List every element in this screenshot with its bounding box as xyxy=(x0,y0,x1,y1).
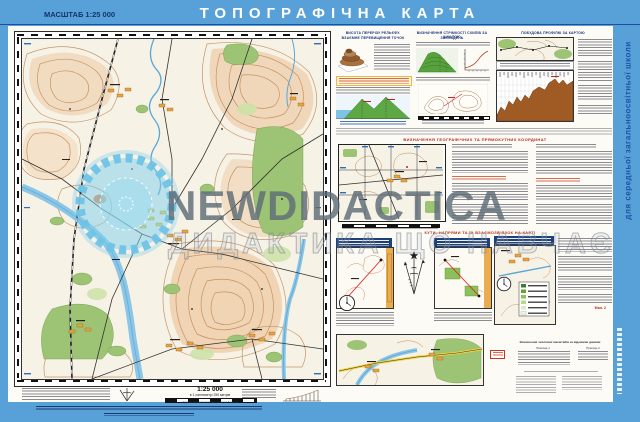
panel3-text-col-2 xyxy=(578,61,612,81)
coords-col1-par1 xyxy=(452,151,528,173)
page-title: ТОПОГРАФІЧНА КАРТА xyxy=(150,5,530,22)
scale-formula-chip xyxy=(490,350,505,359)
layer-pyramid-icon xyxy=(336,42,370,72)
angles-panel2-header xyxy=(434,238,490,247)
panel1-caption xyxy=(340,121,406,125)
panel1-side-notes xyxy=(374,44,410,70)
coords-map-excerpt xyxy=(338,144,446,222)
panel3-text-col-1 xyxy=(578,39,612,57)
figure-label: Мал. 2 xyxy=(576,306,606,310)
gear-watermark-icon xyxy=(70,148,182,260)
angles-panel2-text xyxy=(434,312,492,323)
coords-col2-par2 xyxy=(536,185,612,201)
compass-icon xyxy=(338,294,356,312)
coords-col1-par2 xyxy=(452,183,528,201)
declination-diagram-icon xyxy=(112,387,142,402)
coords-col1-lead xyxy=(452,144,512,149)
coords-col1-highlight xyxy=(452,176,506,180)
panel3-title: ПОБУДОВА ПРОФІЛЮ ЗА КАРТОЮ xyxy=(494,31,612,35)
panel1-title-line2: ВЗАЄМНЕ ПЕРЕВИЩЕННЯ ТОЧОК xyxy=(334,36,412,40)
map-graticule-right xyxy=(325,37,328,378)
map-graticule-top xyxy=(17,34,326,37)
map-notes-right xyxy=(242,389,276,400)
angles-right-par3 xyxy=(558,276,612,290)
coords-map-scale-numbers xyxy=(342,228,438,230)
header-rule xyxy=(0,24,640,26)
angles-panel2-map xyxy=(434,247,492,309)
panel1-paragraph xyxy=(336,87,410,94)
example1-label: Приклад 1 xyxy=(528,346,558,350)
credits-col2 xyxy=(562,376,602,390)
coords-col2-highlight xyxy=(536,178,580,182)
route-strip-map xyxy=(336,334,484,386)
angles-section-title: КУТИ, НАПРЯМИ ТА ЇХ ВЗАЄМОЗВ'ЯЗОК НА КАР… xyxy=(380,231,580,235)
mountain-heights-icon xyxy=(336,95,410,119)
compass2-icon xyxy=(496,276,512,292)
angles-right-par4 xyxy=(558,294,612,304)
terrain-profile-chart xyxy=(496,70,574,122)
panel2-paragraph2 xyxy=(416,77,490,82)
panel3-text-col-3 xyxy=(578,85,612,101)
credits-divider-line xyxy=(524,371,598,373)
footer-imprint-line2 xyxy=(104,413,194,416)
angles-right-par1 xyxy=(558,238,612,252)
coords-col2-par3 xyxy=(536,204,612,224)
panel3-caption-box xyxy=(496,61,574,70)
footer-imprint-line1 xyxy=(36,406,262,411)
panel2-caption xyxy=(422,120,484,124)
coords-col2-lead xyxy=(536,144,596,149)
declination-star-icon xyxy=(398,250,430,296)
panel2-paragraph1 xyxy=(416,42,490,47)
poster-root: МАСШТАБ 1:25 000 ТОПОГРАФІЧНА КАРТА для … xyxy=(0,0,640,422)
profile-route-map-icon xyxy=(496,37,574,61)
credits-col1 xyxy=(516,376,556,394)
coords-section-title: ВИЗНАЧЕННЯ ГЕОГРАФІЧНИХ ТА ПРЯМОКУТНИХ К… xyxy=(360,137,590,142)
angles-panel1-header xyxy=(336,238,392,247)
example1-list xyxy=(518,351,570,365)
map-notes-left xyxy=(22,388,110,401)
map-contour-note: Суцільні горизонталі проведені через 5 м… xyxy=(150,401,270,404)
side-strip-micro-text xyxy=(617,328,622,394)
side-strip-vertical-text: для середньої загальноосвітньої школи xyxy=(624,30,637,232)
panel1-highlight-note xyxy=(336,76,412,86)
panel2-title-line2: ЗАКЛАДЕНЬ xyxy=(414,36,490,40)
contour-sketch-icon xyxy=(418,84,488,114)
panel3-text-col-4 xyxy=(578,105,612,115)
angles-right-par2 xyxy=(558,256,612,272)
example2-label: Приклад 2 xyxy=(578,346,608,350)
angles-panel3-header xyxy=(494,236,554,245)
green-slope-icon xyxy=(416,48,458,74)
angles-panel1-text xyxy=(336,312,394,326)
coords-col2-par1 xyxy=(536,151,612,175)
intro-paragraph xyxy=(336,128,612,135)
coords-col1-par3 xyxy=(452,204,528,224)
examples-title: Визначення числових масштабів за відомим… xyxy=(510,340,610,344)
example2-list xyxy=(578,351,608,361)
laying-scale-chart-icon xyxy=(462,48,490,74)
map-graticule-left xyxy=(17,37,20,378)
slope-scale-icon xyxy=(282,388,322,402)
